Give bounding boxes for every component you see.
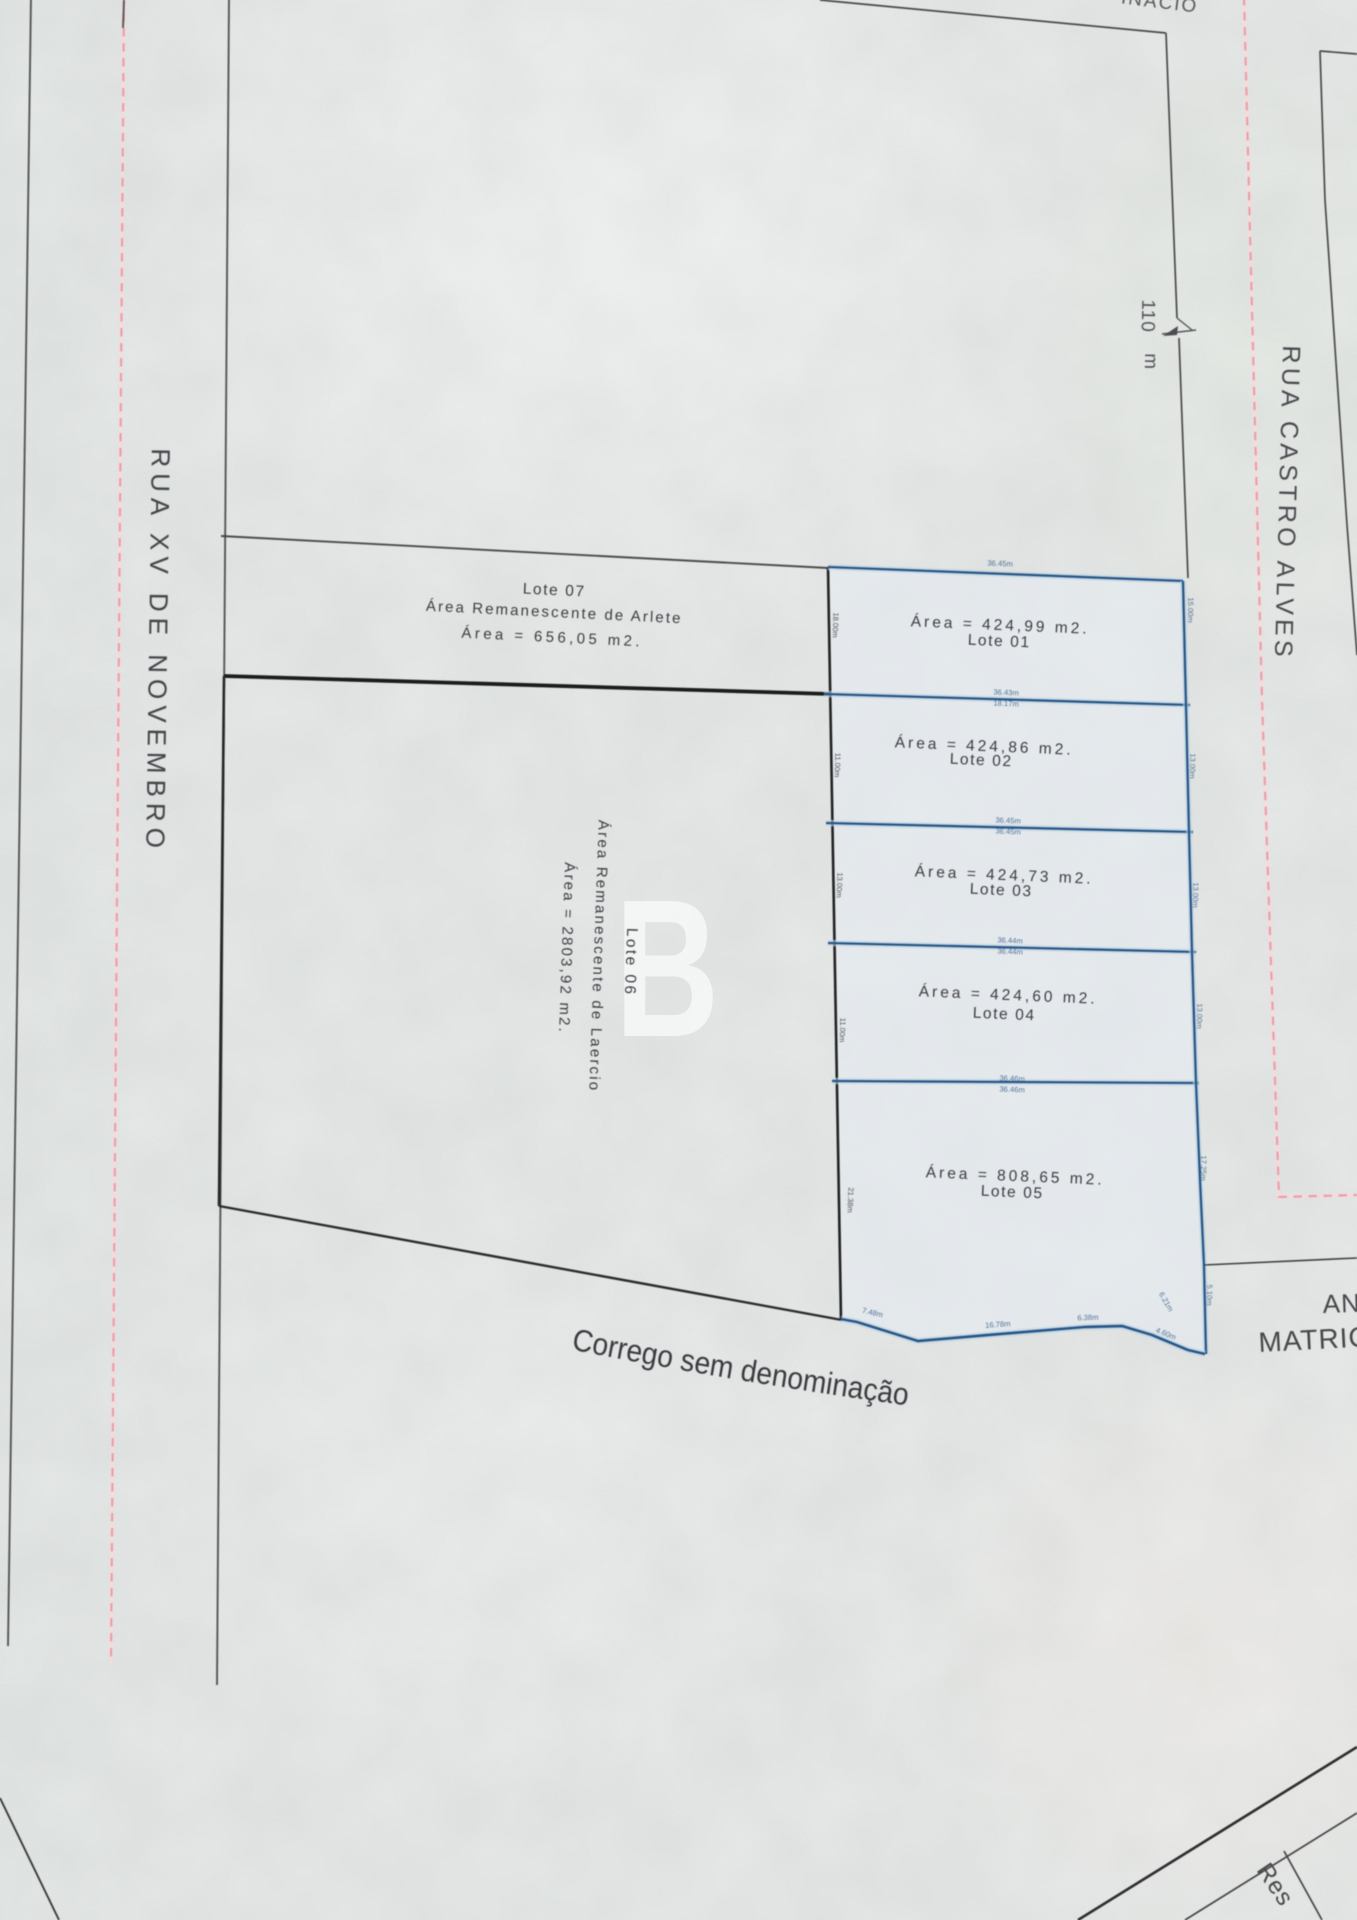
- svg-text:15.00m: 15.00m: [1186, 597, 1195, 622]
- svg-text:13.00m: 13.00m: [835, 872, 845, 898]
- svg-text:Lote 06: Lote 06: [621, 928, 640, 997]
- svg-text:16.78m: 16.78m: [985, 1319, 1011, 1330]
- svg-text:Lote 05: Lote 05: [980, 1183, 1044, 1203]
- svg-text:18.17m: 18.17m: [993, 699, 1019, 709]
- svg-text:AN: AN: [1322, 1288, 1357, 1319]
- svg-text:11.00m: 11.00m: [838, 1018, 848, 1043]
- svg-text:6.38m: 6.38m: [1077, 1313, 1098, 1323]
- svg-text:36.45m: 36.45m: [995, 827, 1021, 837]
- svg-text:36.44m: 36.44m: [997, 936, 1023, 946]
- svg-text:Lote 02: Lote 02: [949, 751, 1013, 771]
- svg-text:Lote 07: Lote 07: [522, 580, 586, 600]
- svg-text:MATRIC: MATRIC: [1258, 1321, 1357, 1358]
- svg-text:Lote 01: Lote 01: [967, 632, 1031, 652]
- svg-text:11.00m: 11.00m: [833, 753, 843, 778]
- svg-text:36.45m: 36.45m: [987, 559, 1013, 569]
- svg-text:5.10m: 5.10m: [1205, 1284, 1214, 1305]
- svg-text:21.38m: 21.38m: [846, 1187, 856, 1213]
- svg-text:17.25m: 17.25m: [1199, 1155, 1208, 1180]
- svg-text:13.00m: 13.00m: [1191, 882, 1200, 907]
- svg-text:36.43m: 36.43m: [993, 688, 1019, 698]
- svg-text:36.46m: 36.46m: [999, 1074, 1025, 1084]
- svg-text:18.00m: 18.00m: [831, 612, 841, 638]
- svg-text:RUA XV DE NOVEMBRO: RUA XV DE NOVEMBRO: [140, 448, 176, 854]
- svg-text:13.00m: 13.00m: [1195, 1003, 1204, 1028]
- svg-text:110: 110: [1137, 299, 1159, 333]
- svg-text:36.45m: 36.45m: [995, 816, 1021, 826]
- svg-text:m: m: [1140, 353, 1161, 369]
- svg-text:Lote 04: Lote 04: [972, 1005, 1036, 1025]
- svg-text:13.00m: 13.00m: [1188, 753, 1197, 778]
- svg-text:36.44m: 36.44m: [997, 947, 1023, 957]
- svg-text:Lote 03: Lote 03: [969, 881, 1033, 901]
- svg-text:36.46m: 36.46m: [999, 1085, 1025, 1095]
